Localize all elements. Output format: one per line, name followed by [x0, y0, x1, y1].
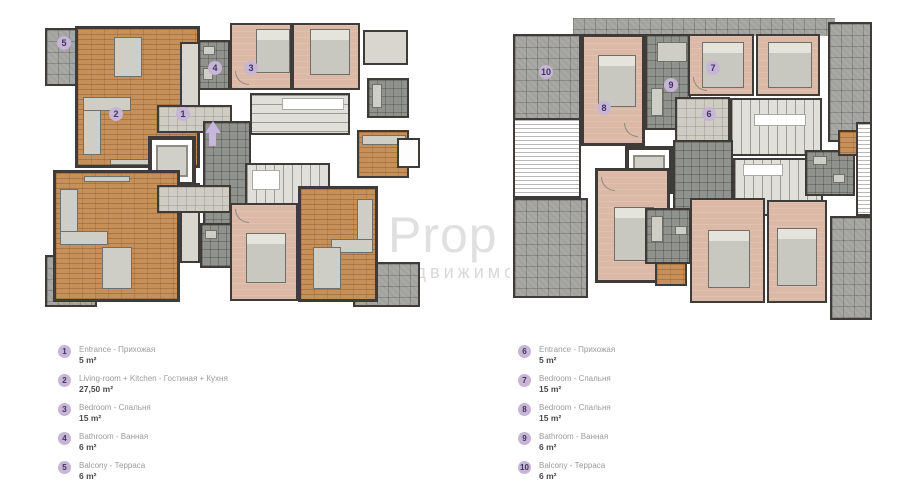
floor-plan-right: 6 7 8 9 10	[510, 18, 872, 320]
legend-area: 27,50 m²	[79, 384, 228, 394]
room-number-badge: 1	[176, 107, 190, 121]
legend-area: 6 m²	[79, 442, 148, 452]
legend-area: 15 m²	[539, 384, 611, 394]
stair-landing	[252, 170, 280, 190]
stair-landing	[743, 164, 783, 176]
bathroom-bottom	[200, 223, 232, 268]
legend-number-badge: 4	[58, 432, 71, 445]
door-arc	[693, 77, 707, 91]
entrance-hall-bottom	[157, 185, 231, 213]
pergola-left	[513, 118, 581, 198]
stair-landing	[754, 114, 806, 126]
legend-label: Bedroom - Спальня	[539, 374, 611, 383]
door-arc	[624, 123, 638, 137]
legend-number-badge: 7	[518, 374, 531, 387]
dining-table	[313, 247, 341, 289]
legend-label: Bathroom - Ванная	[539, 432, 608, 441]
room-number-badge: 5	[57, 36, 71, 50]
sink	[205, 230, 217, 239]
stair-box-right	[838, 130, 858, 156]
room-number-badge: 9	[664, 78, 678, 92]
legend-item: 7 Bedroom - Спальня 15 m²	[518, 374, 615, 394]
legend-area: 5 m²	[79, 355, 155, 365]
legend-number-badge: 5	[58, 461, 71, 474]
dining-table	[102, 247, 132, 289]
legend-item: 1 Entrance - Прихожая 5 m²	[58, 345, 228, 365]
living-room-bottom-right	[298, 186, 378, 302]
sink	[203, 46, 215, 55]
legend-item: 8 Bedroom - Спальня 15 m²	[518, 403, 615, 423]
legend-number-badge: 8	[518, 403, 531, 416]
bathroom-top-right	[367, 78, 409, 118]
bathroom-right	[805, 150, 855, 196]
bedroom-8	[581, 34, 645, 146]
room-number-badge: 10	[539, 65, 553, 79]
balcony-left-bottom	[513, 198, 588, 298]
room-number-badge: 2	[109, 107, 123, 121]
legend-item: 3 Bedroom - Спальня 15 m²	[58, 403, 228, 423]
legend-label: Balcony - Терраса	[79, 461, 145, 470]
legend-label: Balcony - Терраса	[539, 461, 605, 470]
room-number-badge: 3	[244, 61, 258, 75]
room-number-badge: 7	[706, 61, 720, 75]
bed	[708, 230, 750, 288]
bed	[310, 29, 350, 75]
legend-left: 1 Entrance - Прихожая 5 m² 2 Living-room…	[58, 345, 228, 481]
bedroom-3	[230, 23, 292, 90]
room-number-badge: 8	[597, 101, 611, 115]
bathtub	[651, 88, 663, 116]
room-number-badge: 4	[208, 61, 222, 75]
floor-plan-left: 1 2 3 4 5	[45, 18, 420, 308]
legend-right: 6 Entrance - Прихожая 5 m² 7 Bedroom - С…	[518, 345, 615, 481]
legend-area: 15 m²	[79, 413, 151, 423]
bedroom-3b	[292, 23, 360, 90]
legend-item: 2 Living-room + Kitchen - Гостиная + Кух…	[58, 374, 228, 394]
toilet	[675, 226, 687, 235]
bed	[768, 42, 812, 88]
bedroom-7	[688, 34, 754, 96]
bed	[246, 233, 286, 283]
legend-item: 10 Balcony - Терраса 6 m²	[518, 461, 615, 481]
legend-area: 6 m²	[539, 442, 608, 452]
legend-area: 5 m²	[539, 355, 615, 365]
legend-label: Bathroom - Ванная	[79, 432, 148, 441]
bedroom-bottom	[230, 203, 298, 301]
legend-number-badge: 3	[58, 403, 71, 416]
sofa-corner	[60, 231, 108, 245]
stairwell-right-top	[730, 98, 822, 156]
sauna-bench	[657, 42, 687, 62]
bedroom-lower-mid	[690, 198, 765, 303]
legend-number-badge: 1	[58, 345, 71, 358]
toilet	[833, 174, 845, 183]
room-top-right	[363, 30, 408, 65]
door-arc	[601, 177, 615, 191]
tv-cabinet	[84, 176, 130, 182]
legend-item: 6 Entrance - Прихожая 5 m²	[518, 345, 615, 365]
bathroom-lower	[645, 208, 691, 264]
legend-label: Bedroom - Спальня	[79, 403, 151, 412]
legend-number-badge: 10	[518, 461, 531, 474]
door-arc	[235, 209, 249, 223]
legend-item: 9 Bathroom - Ванная 6 m²	[518, 432, 615, 452]
legend-item: 5 Balcony - Терраса 6 m²	[58, 461, 228, 481]
sink	[813, 156, 827, 165]
bed	[256, 29, 290, 73]
legend-label: Bedroom - Спальня	[539, 403, 611, 412]
stair-box-lower	[655, 262, 687, 286]
legend-area: 15 m²	[539, 413, 611, 423]
pergola-right	[856, 122, 872, 216]
bedroom-7b	[756, 34, 820, 96]
stair-landing	[282, 98, 344, 110]
bed	[777, 228, 817, 286]
balcony-box-right	[397, 138, 420, 168]
legend-label: Entrance - Прихожая	[79, 345, 155, 354]
legend-number-badge: 9	[518, 432, 531, 445]
bed	[598, 55, 636, 107]
legend-item: 4 Bathroom - Ванная 6 m²	[58, 432, 228, 452]
bedroom-lower-right	[767, 200, 827, 303]
dining-table	[114, 37, 142, 77]
bathtub	[372, 84, 382, 108]
stairwell-top	[250, 93, 350, 135]
bathtub	[651, 216, 663, 242]
balcony-right-bottom	[830, 216, 872, 320]
sofa-corner	[83, 97, 131, 111]
room-number-badge: 6	[702, 107, 716, 121]
legend-label: Living-room + Kitchen - Гостиная + Кухня	[79, 374, 228, 383]
legend-number-badge: 2	[58, 374, 71, 387]
legend-label: Entrance - Прихожая	[539, 345, 615, 354]
legend-number-badge: 6	[518, 345, 531, 358]
